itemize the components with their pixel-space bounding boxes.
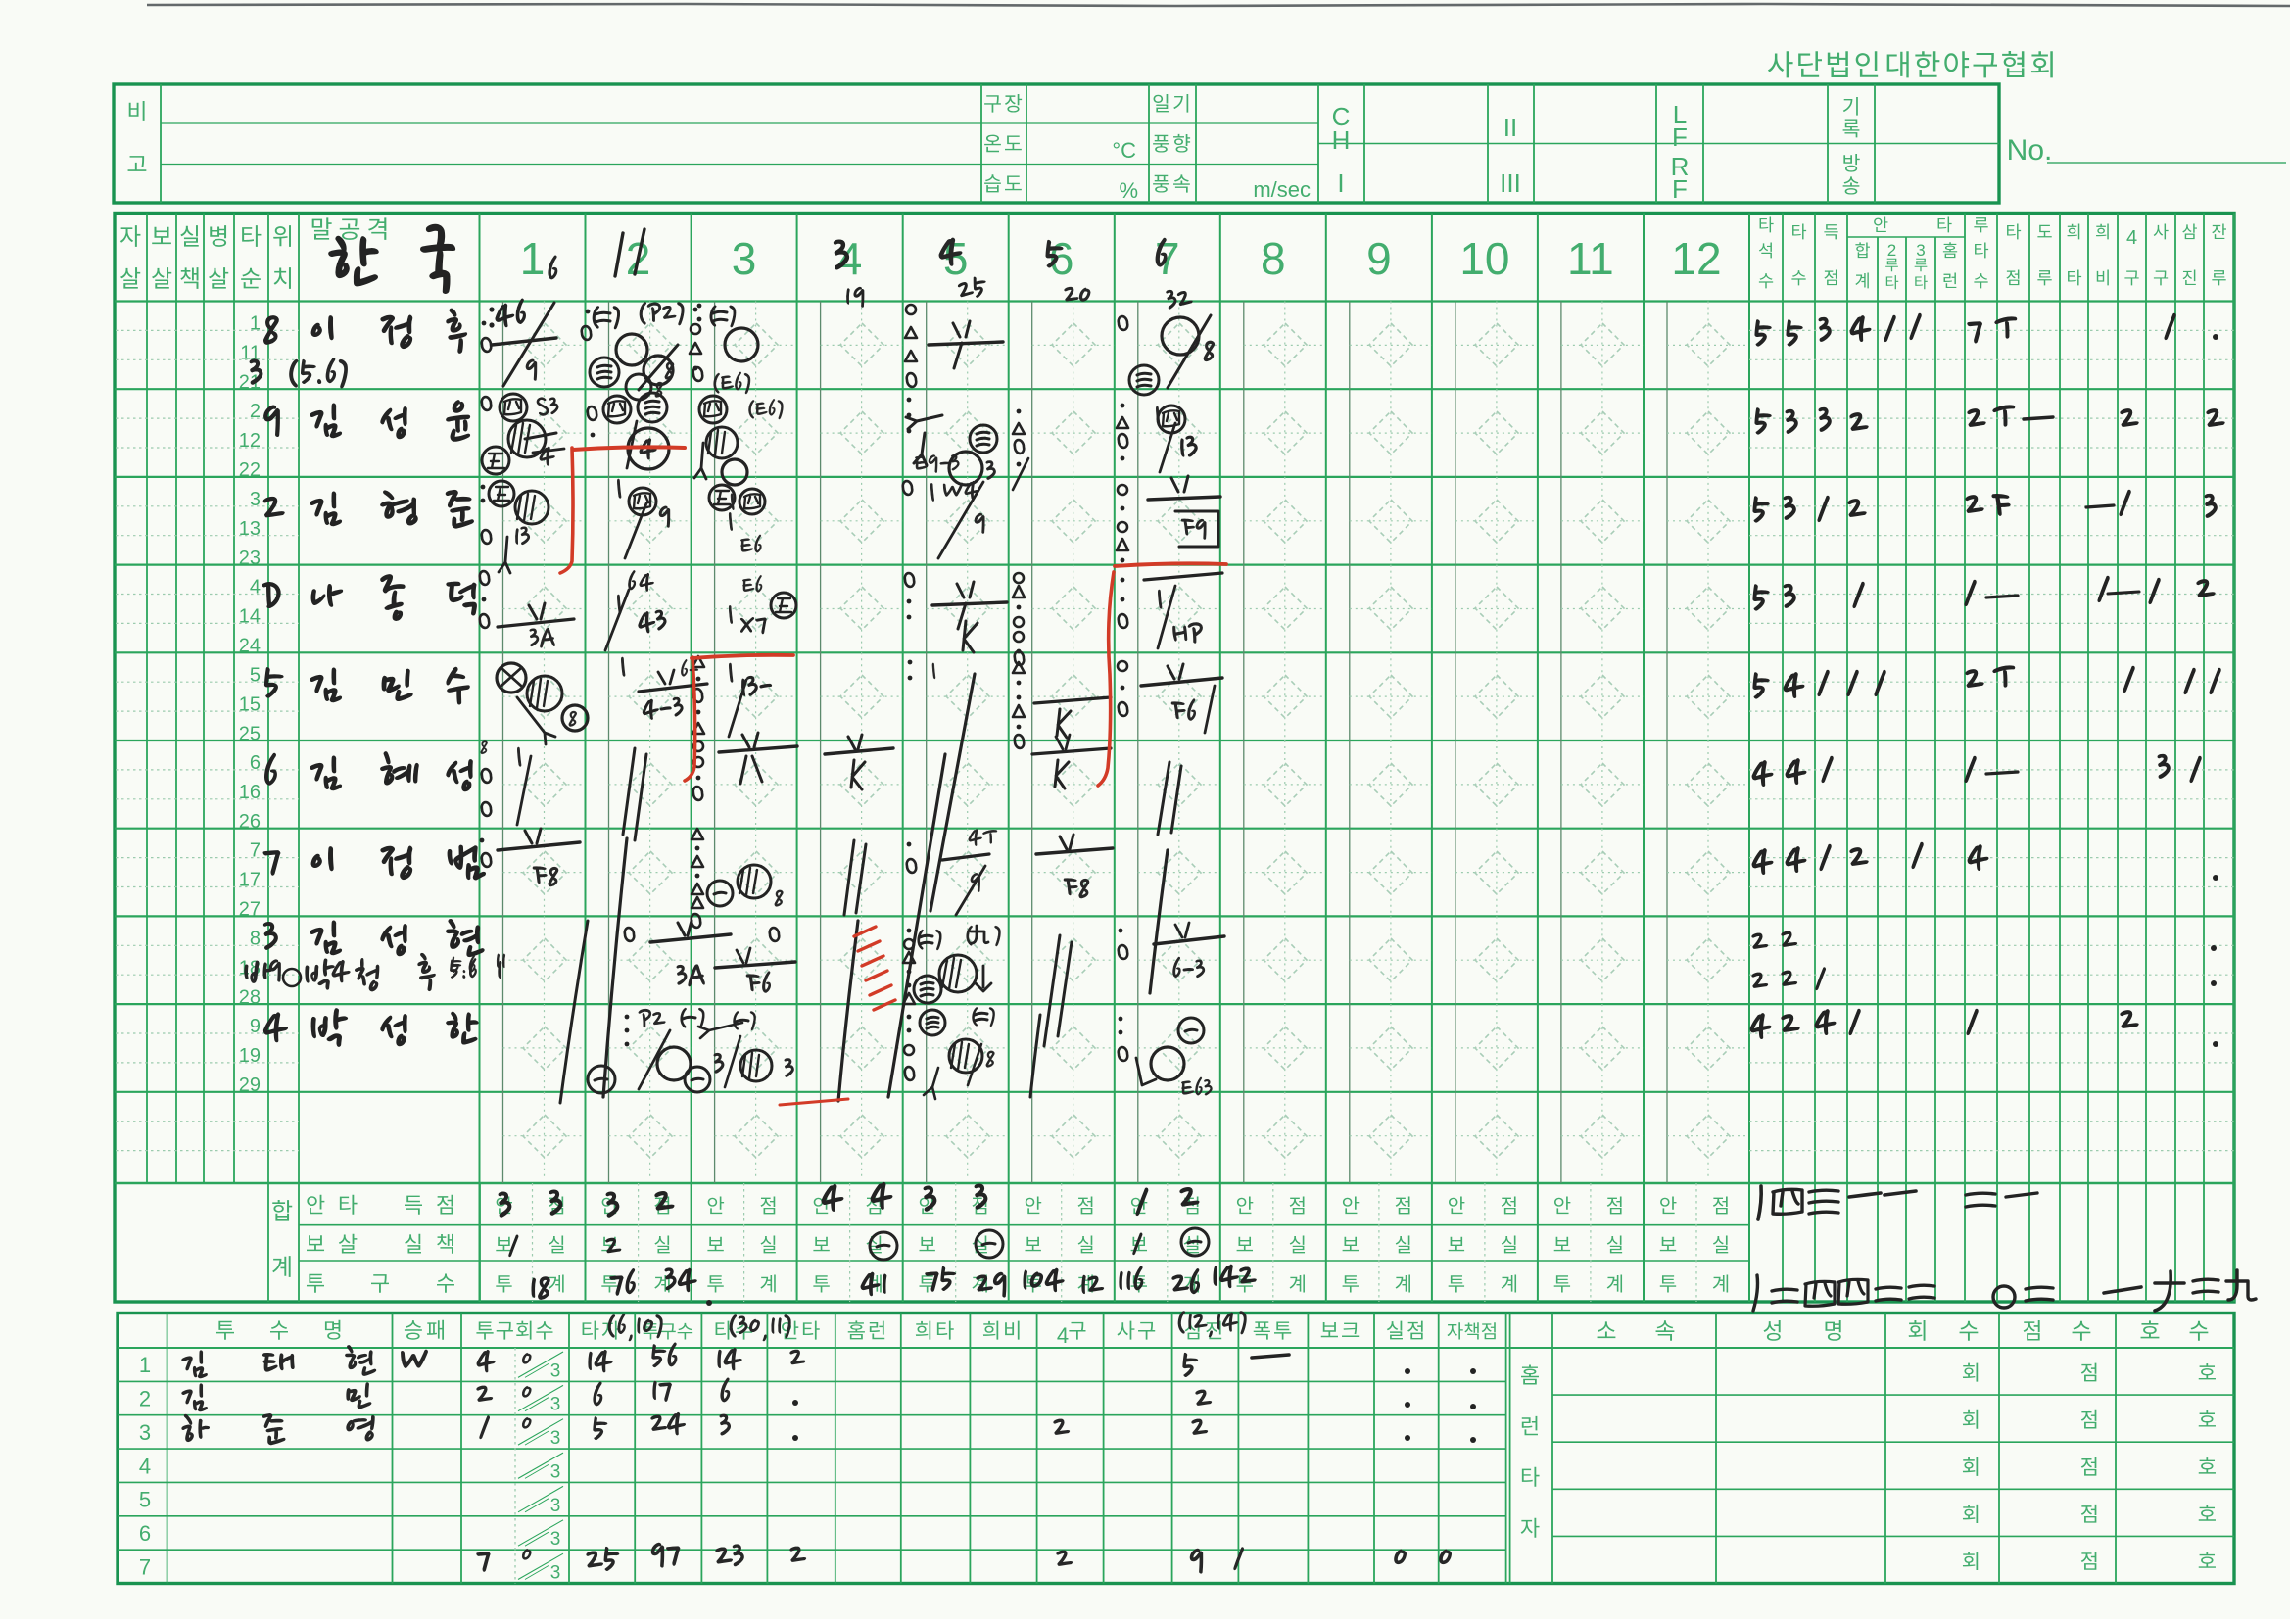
svg-text:9: 9 (250, 1016, 261, 1037)
svg-text:3: 3 (550, 1563, 561, 1584)
svg-text:°C: °C (1112, 138, 1136, 163)
svg-text:28: 28 (239, 986, 261, 1008)
svg-text:1: 1 (139, 1353, 151, 1377)
svg-text:4: 4 (250, 577, 261, 598)
svg-text:F: F (1672, 174, 1688, 204)
svg-text:13: 13 (239, 518, 261, 540)
svg-text:4: 4 (1057, 1323, 1069, 1348)
svg-text:22: 22 (239, 459, 261, 481)
svg-text:29: 29 (239, 1075, 261, 1096)
svg-text:2: 2 (1887, 241, 1896, 260)
svg-text:15: 15 (239, 693, 261, 715)
svg-text:17: 17 (239, 870, 261, 891)
svg-text:2: 2 (139, 1387, 151, 1411)
svg-text:4: 4 (2126, 227, 2137, 249)
svg-text:26: 26 (239, 811, 261, 833)
svg-text:10: 10 (1459, 233, 1509, 284)
svg-text:6: 6 (250, 752, 261, 774)
svg-text:7: 7 (250, 840, 261, 862)
svg-text:3: 3 (550, 1496, 561, 1516)
svg-text:23: 23 (239, 548, 261, 569)
svg-text:3: 3 (550, 1529, 561, 1550)
svg-text:m/sec: m/sec (1253, 177, 1311, 202)
svg-text:9: 9 (1366, 233, 1392, 284)
svg-text:25: 25 (239, 723, 261, 744)
svg-text:1: 1 (250, 313, 261, 335)
svg-text:6: 6 (139, 1521, 151, 1546)
svg-text:19: 19 (239, 1045, 261, 1067)
svg-text:8: 8 (1261, 233, 1286, 284)
svg-text:14: 14 (239, 606, 261, 628)
svg-text:12: 12 (1671, 233, 1721, 284)
svg-text:8: 8 (250, 928, 261, 949)
svg-text:5: 5 (139, 1488, 151, 1512)
svg-text:3: 3 (139, 1420, 151, 1445)
svg-text:F: F (1672, 122, 1688, 152)
svg-text:II: II (1503, 113, 1517, 142)
svg-text:27: 27 (239, 899, 261, 921)
svg-text:III: III (1500, 168, 1521, 198)
svg-text:3: 3 (550, 1361, 561, 1381)
svg-text:3: 3 (550, 1461, 561, 1482)
svg-text:3: 3 (732, 233, 757, 284)
svg-text:I: I (1337, 168, 1344, 198)
svg-text:%: % (1119, 178, 1138, 203)
svg-text:6: 6 (1049, 233, 1074, 284)
svg-text:21: 21 (239, 372, 261, 394)
svg-text:11: 11 (1567, 233, 1614, 284)
svg-text:H: H (1332, 125, 1351, 155)
svg-text:3: 3 (550, 1428, 561, 1449)
svg-text:12: 12 (239, 430, 261, 452)
svg-text:3: 3 (550, 1395, 561, 1415)
svg-text:5: 5 (250, 664, 261, 686)
svg-text:1: 1 (520, 233, 546, 284)
svg-text:3: 3 (250, 489, 261, 510)
svg-text:No.: No. (2007, 134, 2053, 167)
svg-text:3: 3 (1916, 241, 1925, 260)
svg-text:2: 2 (250, 401, 261, 422)
svg-text:7: 7 (139, 1554, 151, 1579)
svg-text:24: 24 (239, 636, 261, 657)
svg-text:4: 4 (139, 1454, 151, 1478)
svg-text:16: 16 (239, 782, 261, 803)
